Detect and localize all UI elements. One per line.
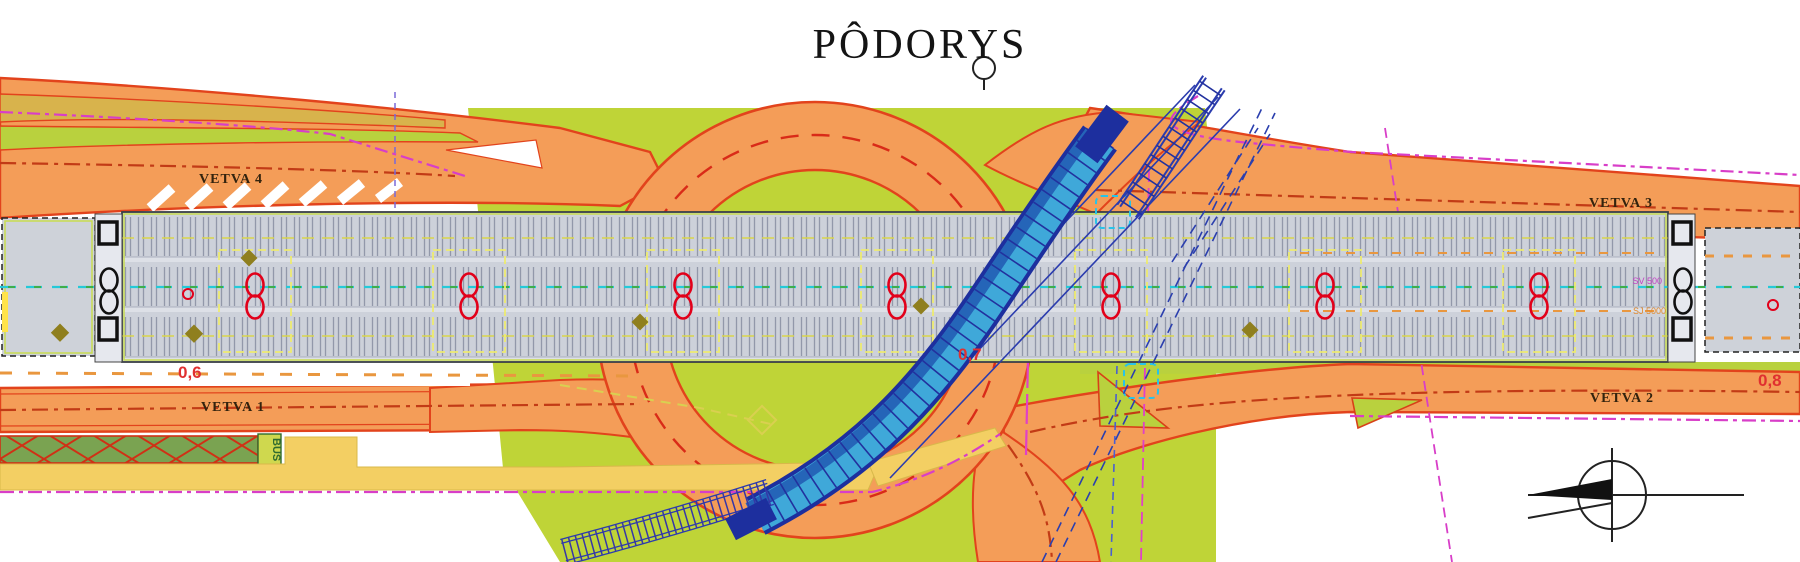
slab-left-yellow-bar	[2, 292, 8, 332]
dim-center: 0,7	[958, 345, 982, 364]
stair-rung	[1200, 81, 1222, 96]
abutment-left	[95, 214, 122, 362]
bus-label: BUS	[270, 438, 282, 461]
label-vetva2: VETVA 2	[1590, 391, 1654, 406]
north-arrow	[1528, 448, 1744, 542]
magenta-line-bottomright	[1350, 416, 1800, 421]
label-vetva4: VETVA 4	[199, 172, 263, 187]
dim-right: 0,8	[1758, 371, 1782, 390]
abutment-right	[1668, 214, 1695, 362]
approach-slab-right	[1705, 228, 1800, 352]
drawing-title: PÔDORYS	[813, 21, 1028, 68]
label-vetva1: VETVA 1	[201, 400, 265, 415]
label-sv500: SV 500	[1632, 276, 1662, 286]
north-arrow-pointer	[1528, 479, 1612, 500]
site-plan-drawing: BUS	[0, 0, 1800, 562]
label-vetva3: VETVA 3	[1589, 196, 1653, 211]
bus-lane-hatch	[0, 436, 258, 463]
label-sj5000: SJ 5000	[1633, 306, 1666, 316]
dim-left: 0,6	[178, 363, 202, 382]
